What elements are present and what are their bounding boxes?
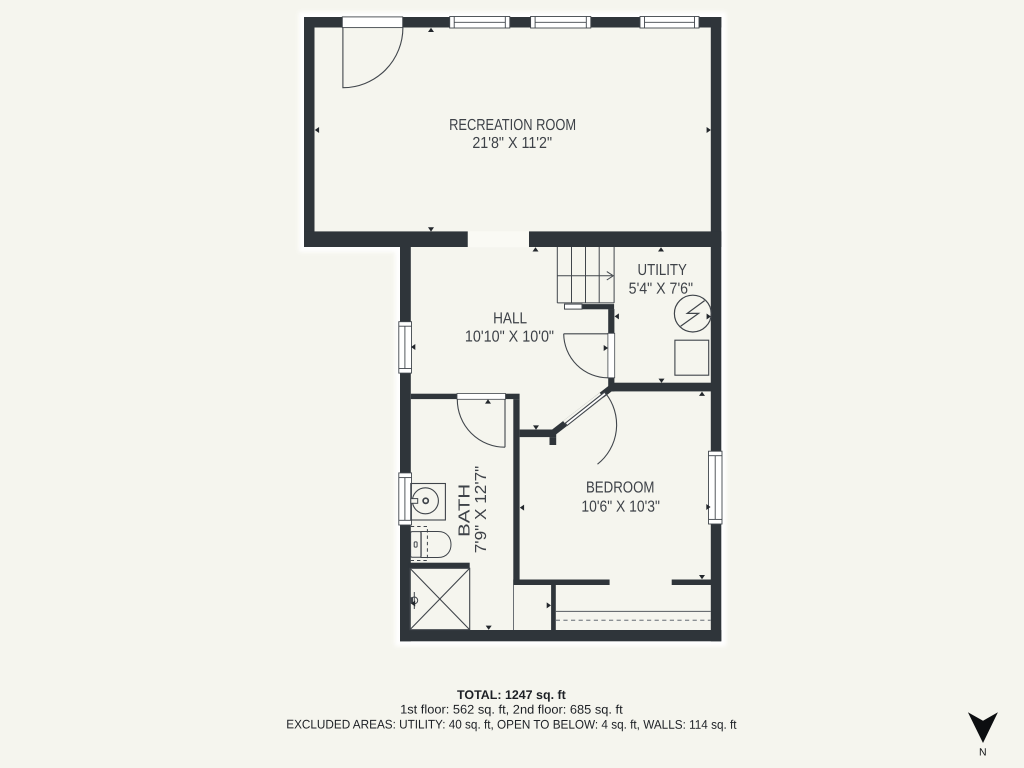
svg-text:10'6" X 10'3": 10'6" X 10'3" (581, 499, 660, 516)
svg-text:HALL: HALL (493, 310, 527, 327)
svg-text:5'4" X 7'6": 5'4" X 7'6" (629, 281, 693, 298)
svg-text:RECREATION ROOM: RECREATION ROOM (449, 117, 576, 134)
svg-text:10'10" X 10'0": 10'10" X 10'0" (465, 329, 554, 346)
svg-text:TOTAL: 1247 sq. ft: TOTAL: 1247 sq. ft (457, 688, 567, 702)
svg-text:N: N (979, 746, 987, 758)
svg-text:EXCLUDED AREAS: UTILITY: 40 sq: EXCLUDED AREAS: UTILITY: 40 sq. ft, OPEN… (286, 717, 737, 731)
svg-text:BEDROOM: BEDROOM (586, 479, 655, 496)
svg-text:7'9" X 12'7": 7'9" X 12'7" (473, 466, 490, 554)
svg-text:UTILITY: UTILITY (638, 262, 688, 279)
svg-text:21'8" X 11'2": 21'8" X 11'2" (472, 135, 552, 152)
svg-text:1st floor: 562 sq. ft, 2nd flo: 1st floor: 562 sq. ft, 2nd floor: 685 sq… (400, 703, 623, 717)
svg-text:BATH: BATH (456, 484, 473, 537)
